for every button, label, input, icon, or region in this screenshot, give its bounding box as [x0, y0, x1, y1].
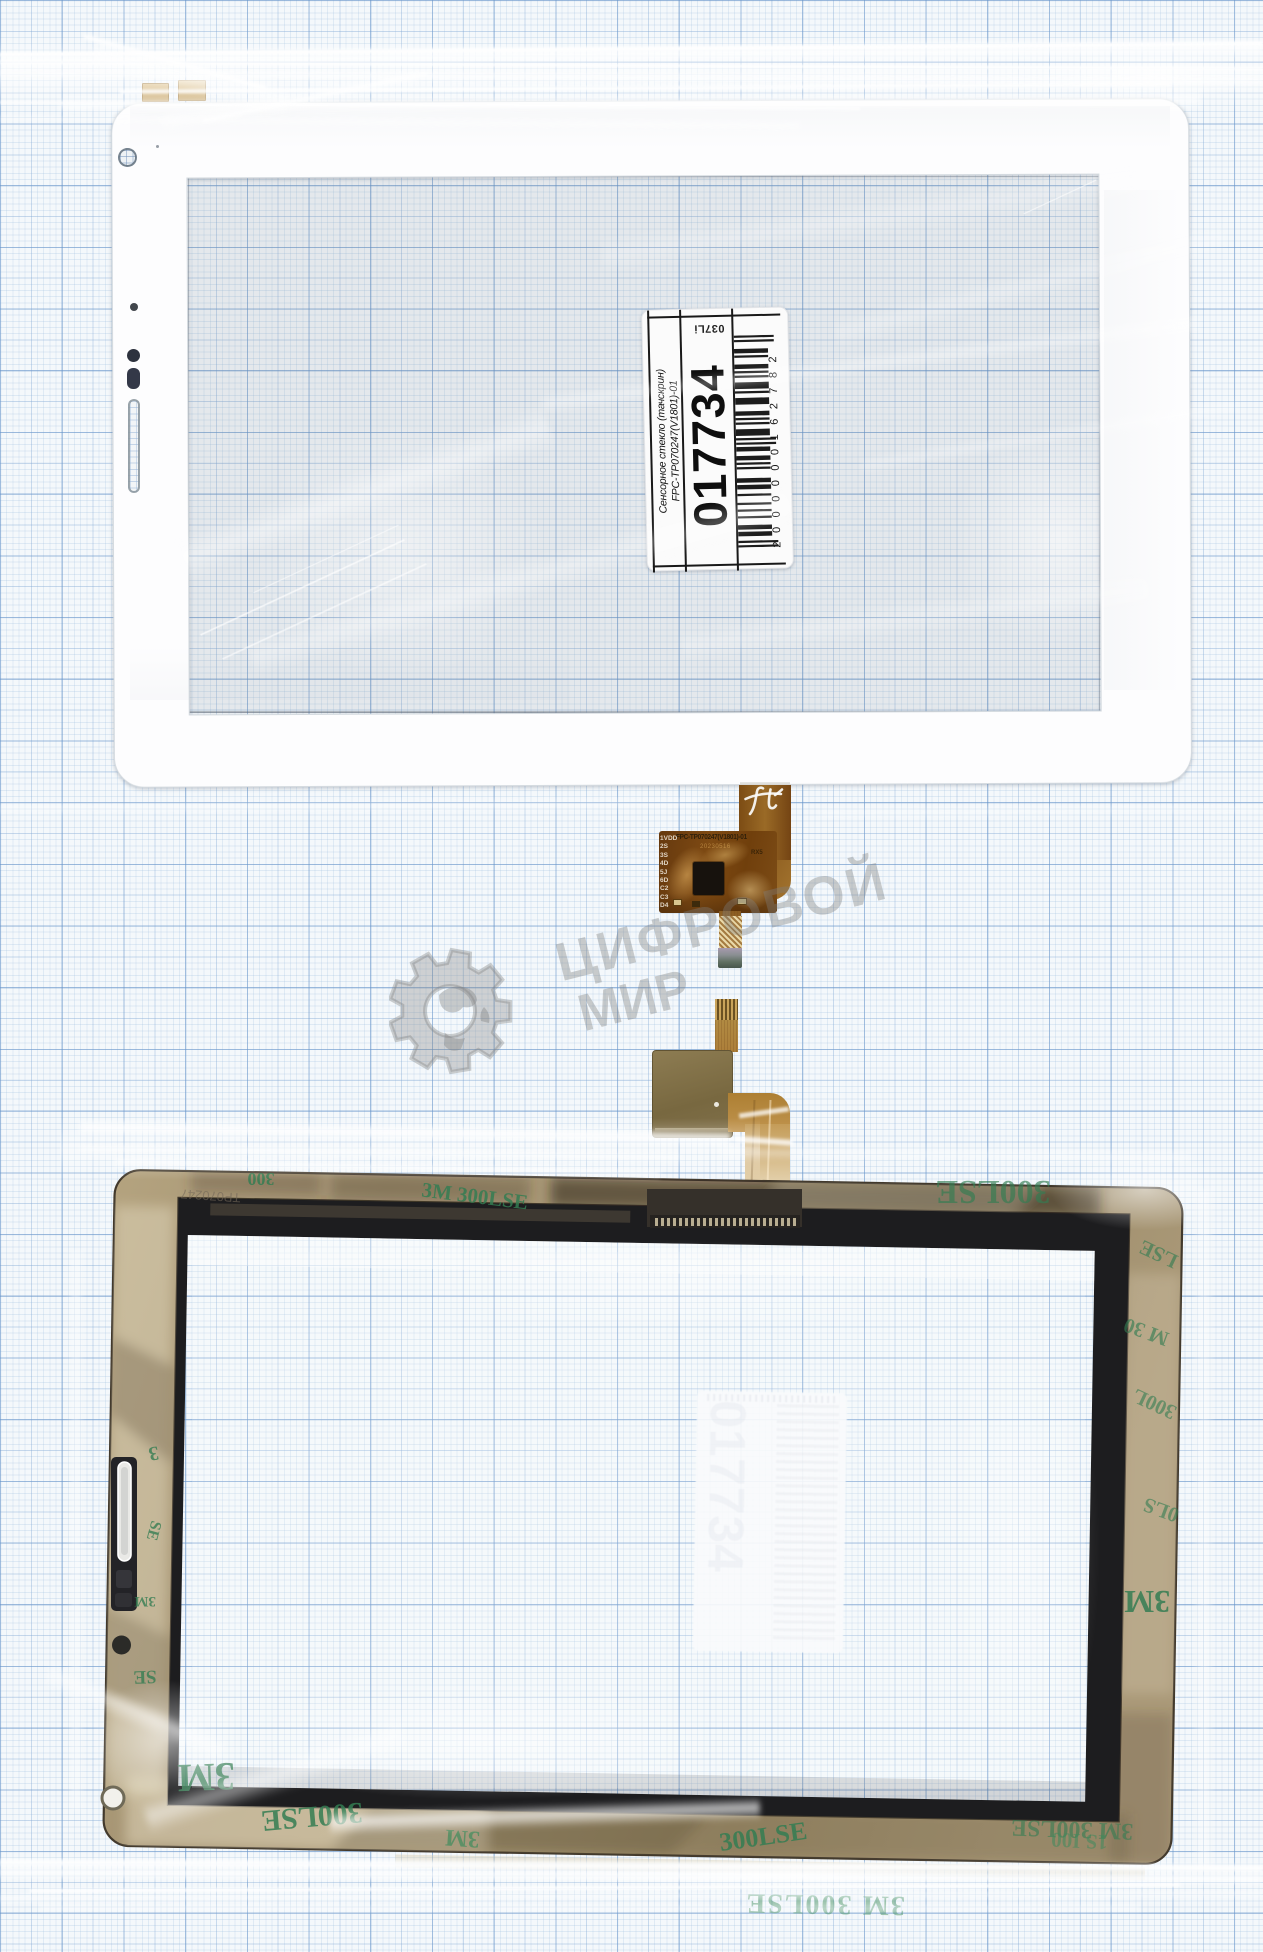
svg-text:300LSE: 300LSE [935, 1173, 1050, 1210]
svg-text:3M: 3M [1124, 1584, 1170, 1620]
svg-text:3M: 3M [134, 1593, 156, 1609]
